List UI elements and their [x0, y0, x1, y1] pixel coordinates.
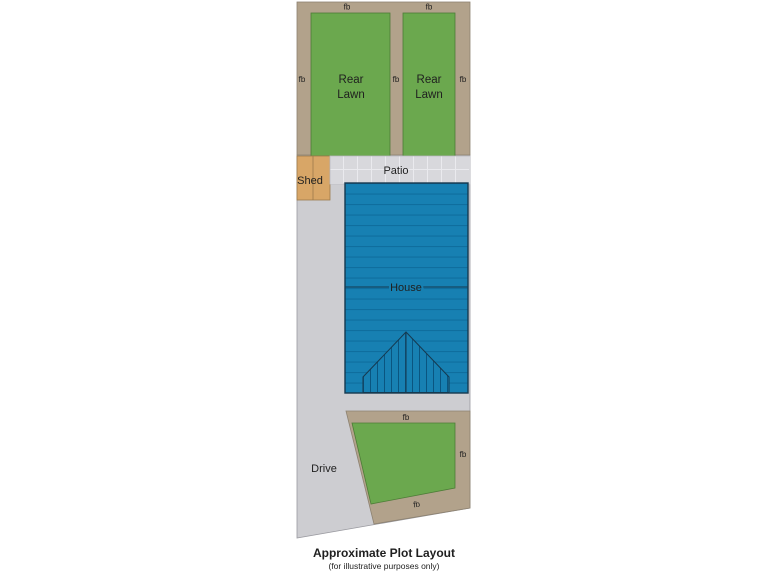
- rear-lawn-right-label-line1: Rear: [417, 74, 442, 86]
- shed-label: Shed: [297, 175, 323, 187]
- rear-lawn-right-label-line2: Lawn: [415, 89, 443, 101]
- fb-label-rear-right: fb: [460, 75, 467, 84]
- fb-label-front-right: fb: [460, 450, 467, 459]
- fb-label-rear-left: fb: [299, 75, 306, 84]
- plot-layout-diagram: fb fb fb fb fb Rear Lawn Rear Lawn Shed …: [0, 0, 768, 576]
- fb-label-rear-middle: fb: [393, 75, 400, 84]
- drive-label: Drive: [311, 463, 337, 475]
- fb-label-rear-top-left: fb: [344, 3, 351, 12]
- house-label: House: [390, 282, 422, 294]
- rear-lawn-left-label-line2: Lawn: [337, 89, 365, 101]
- caption-subtitle: (for illustrative purposes only): [328, 561, 439, 571]
- rear-lawn-left-label-line1: Rear: [339, 74, 364, 86]
- fb-label-front-top: fb: [403, 413, 410, 422]
- fb-label-rear-top-right: fb: [426, 3, 433, 12]
- patio-label: Patio: [383, 165, 408, 177]
- caption-title: Approximate Plot Layout: [313, 546, 455, 560]
- plot-layout-svg: fb fb fb fb fb Rear Lawn Rear Lawn Shed …: [0, 0, 768, 576]
